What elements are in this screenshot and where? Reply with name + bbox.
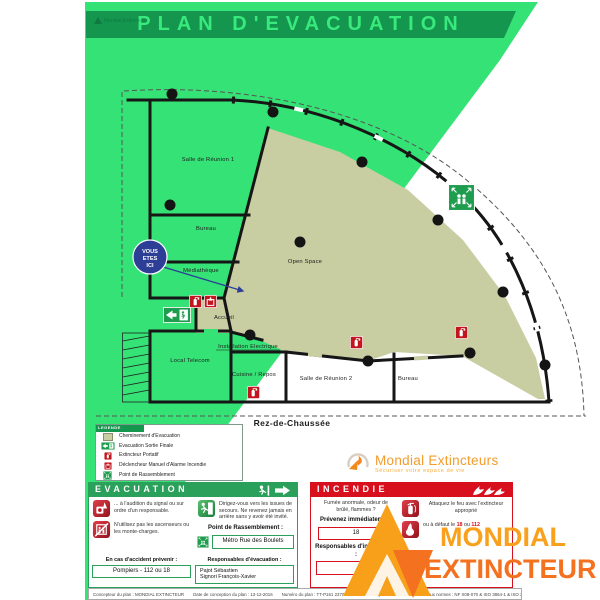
column-dot [540, 360, 551, 371]
column-dot [433, 215, 444, 226]
incendie-header: INCENDIE [311, 483, 512, 497]
column-dot [268, 107, 279, 118]
assembly-point-label: Point de Rassemblement : [197, 525, 294, 533]
exit-door-icon [197, 499, 216, 518]
watermark-text-2: EXTINCTEUR [424, 556, 597, 583]
alarm-button-icon [92, 499, 111, 518]
room-label: Installation Electrique [218, 344, 278, 350]
room-label: Accueil [214, 315, 234, 321]
column-dot [357, 157, 368, 168]
legend-item-label: Cheminement d'Evacuation [119, 434, 180, 439]
assembly-point-icon [100, 471, 115, 480]
evacuation-header: EVACUATION [89, 483, 297, 497]
header-brand-name: Mondial Extincteurs [104, 18, 148, 24]
incendie-header-label: INCENDIE [317, 484, 388, 495]
column-dot [465, 348, 476, 359]
arrow-right-icon [275, 485, 290, 494]
you-are-here-line: ETES [143, 256, 158, 262]
room-label: Bureau [398, 376, 418, 382]
accident-label: En cas d'accident prévenir : [92, 557, 191, 564]
room-label: Open Space [288, 259, 322, 265]
no-elevator-icon [92, 520, 111, 539]
extinguisher-icon [189, 295, 201, 307]
column-dot [295, 237, 306, 248]
exit-running-man-icon [257, 485, 291, 496]
evac-signal-text: ... à l'audition du signal ou sur ordre … [114, 499, 194, 514]
legend-item: Evacuation Sortie Finale [96, 442, 242, 452]
accident-value: Pompiers - 112 ou 18 [92, 565, 191, 579]
exit-sign-icon [100, 442, 115, 450]
evac-exit-text: Dirigez-vous vers les issues de secours.… [219, 499, 294, 521]
evacuation-path-swatch-icon [100, 433, 115, 441]
column-dot [167, 89, 178, 100]
evac-signal-item: ... à l'audition du signal ou sur ordre … [92, 499, 194, 518]
legend-item-label: Evacuation Sortie Finale [119, 444, 173, 449]
column-dot [363, 356, 374, 367]
evac-responsible-label: Responsables d'évacuation : [195, 557, 294, 564]
footer-designer: Concepteur du plan : MONDIAL EXTINCTEUR [93, 592, 184, 597]
assembly-point-icon [449, 185, 475, 211]
legend-box: LEGENDE Cheminement d'Evacuation Evacuat… [95, 424, 243, 481]
brand-name: Mondial Extincteurs [375, 454, 499, 468]
assembly-point-icon [197, 536, 209, 548]
legend-title: LEGENDE [96, 425, 144, 432]
you-are-here-line: ICI [146, 263, 154, 269]
legend-item-label: Déclencheur Manuel d'Alarme Incendie [119, 463, 206, 468]
room-label: Salle de Réunion 2 [300, 376, 353, 382]
extinguisher-icon [100, 452, 115, 460]
evac-responsible-2: Signori François-Xavier [200, 574, 291, 581]
legend-item: Cheminement d'Evacuation [96, 432, 242, 442]
page-title: PLAN D'EVACUATION [137, 13, 464, 36]
brand-mark-icon [94, 17, 102, 24]
legend-item: Point de Rassemblement [96, 470, 242, 480]
brand-mark-icon [345, 452, 371, 476]
room-label: Bureau [196, 226, 216, 232]
footer-date: Date de conception du plan : 13-12-2016 [193, 592, 273, 597]
manual-alarm-icon [204, 295, 216, 307]
brand-tagline: Sécuriser votre espace de vie [375, 469, 499, 475]
legend-item-label: Point de Rassemblement [119, 473, 175, 478]
room-label: Médiathèque [183, 268, 219, 274]
header-brand-logo: Mondial Extincteurs [94, 17, 148, 24]
room-label: Cuisine / Repos [232, 372, 276, 378]
room-label: Salle de Réunion 1 [182, 157, 235, 163]
column-dot [165, 200, 176, 211]
evac-exit-item: Dirigez-vous vers les issues de secours.… [197, 499, 294, 521]
room-label: Local Telecom [170, 358, 210, 364]
watermark-text-1: MONDIAL [440, 524, 566, 551]
evacuation-header-label: EVACUATION [95, 484, 188, 495]
extinguisher-icon [455, 326, 467, 338]
extinguisher-icon [350, 336, 362, 348]
evac-elevator-text: N'utilisez pas les ascenseurs ou les mon… [114, 520, 194, 535]
manual-alarm-icon [100, 462, 115, 470]
header-band: Mondial Extincteurs PLAN D'EVACUATION [86, 11, 516, 38]
column-dot [245, 330, 256, 341]
legend-item-label: Extincteur Portatif [119, 453, 158, 458]
exit-sign-icon [163, 307, 190, 322]
evac-responsible-1: Pajot Sébastien [200, 568, 291, 575]
extinguisher-icon [247, 386, 259, 398]
legend-item: Extincteur Portatif [96, 451, 242, 461]
column-dot [498, 287, 509, 298]
floor-label: Rez-de-Chaussée [254, 418, 331, 428]
you-are-here-line: VOUS [142, 249, 158, 255]
legend-item: Déclencheur Manuel d'Alarme Incendie [96, 461, 242, 471]
assembly-point-value: Métro Rue des Boulets [212, 535, 294, 549]
flames-icon [472, 485, 506, 496]
evac-elevator-item: N'utilisez pas les ascenseurs ou les mon… [92, 520, 194, 539]
brand-logo: Mondial Extincteurs Sécuriser votre espa… [345, 449, 513, 479]
evacuation-panel: EVACUATION ... à l'audition du signal ou… [88, 482, 298, 588]
